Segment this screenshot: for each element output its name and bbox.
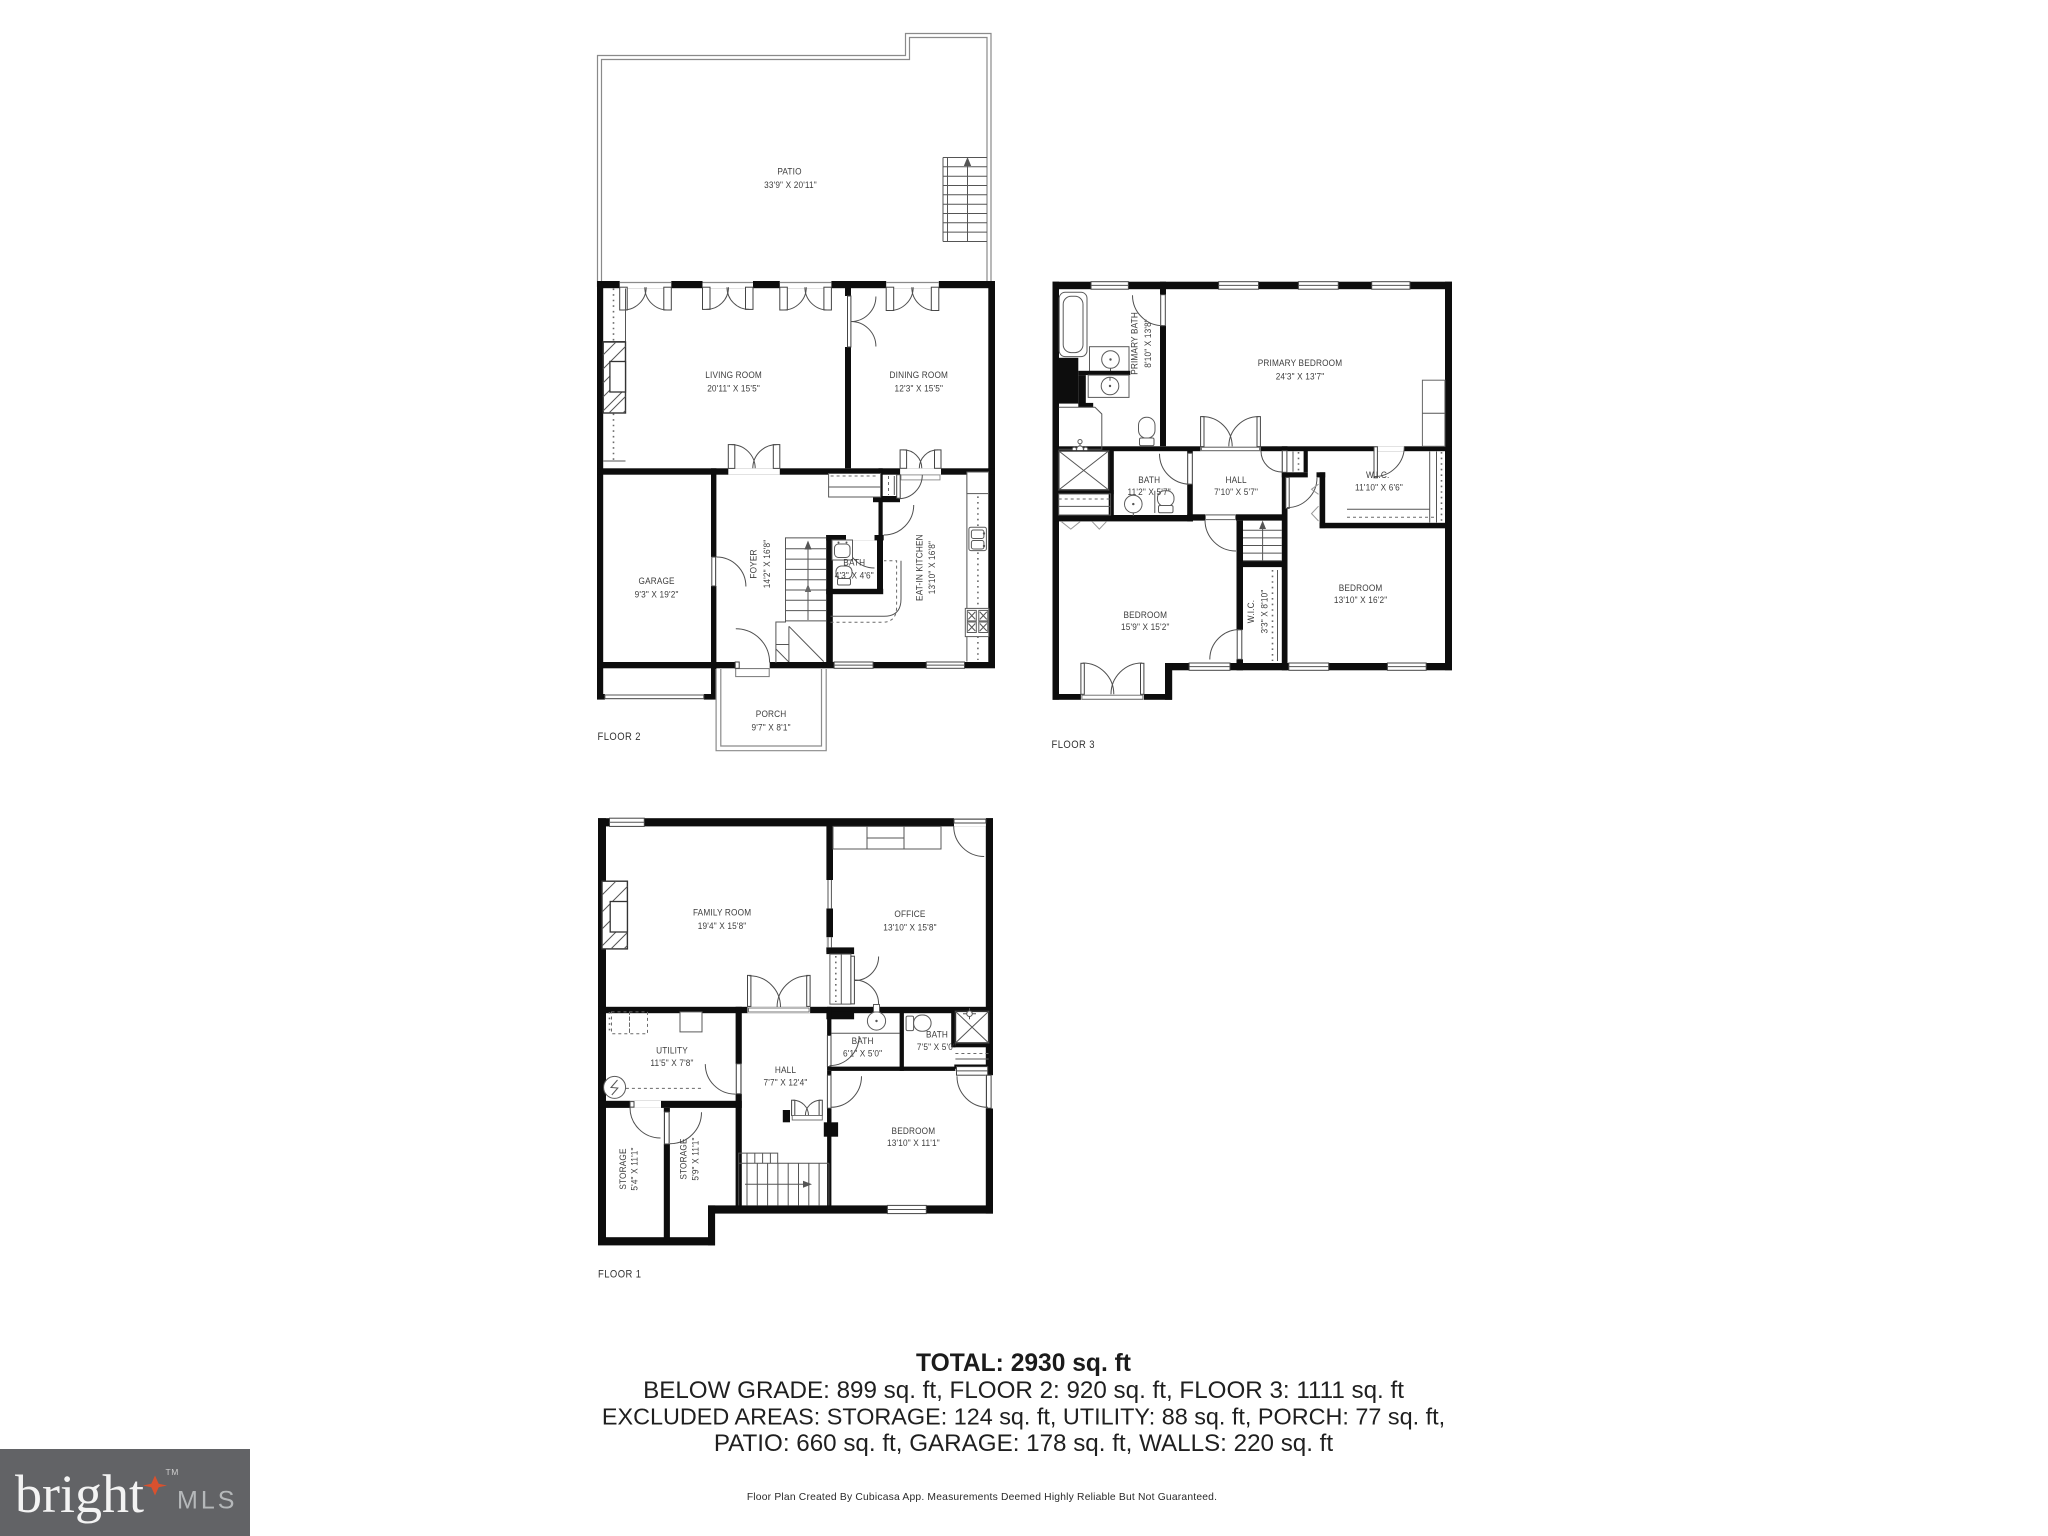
svg-text:5'4" X 11'1": 5'4" X 11'1" <box>630 1147 641 1190</box>
svg-text:W.I.C.: W.I.C. <box>1246 600 1257 623</box>
svg-text:24'3" X 13'7": 24'3" X 13'7" <box>1276 372 1325 383</box>
svg-text:PORCH: PORCH <box>756 709 787 720</box>
svg-text:9'7" X 8'1": 9'7" X 8'1" <box>752 723 791 734</box>
svg-text:FAMILY ROOM: FAMILY ROOM <box>693 908 751 919</box>
svg-text:LIVING ROOM: LIVING ROOM <box>705 370 762 381</box>
svg-text:4'3" X 4'6": 4'3" X 4'6" <box>835 571 874 582</box>
svg-text:HALL: HALL <box>1225 475 1247 486</box>
svg-text:STORAGE: STORAGE <box>679 1138 690 1179</box>
svg-text:TOTAL: 2930 sq. ft: TOTAL: 2930 sq. ft <box>916 1350 1131 1377</box>
svg-text:MLS: MLS <box>177 1487 237 1515</box>
svg-text:BATH: BATH <box>926 1030 948 1041</box>
svg-text:11'5" X 7'8": 11'5" X 7'8" <box>650 1058 693 1069</box>
svg-text:3'3" X 8'10": 3'3" X 8'10" <box>1260 590 1271 634</box>
svg-text:5'9" X 11'1": 5'9" X 11'1" <box>691 1137 702 1180</box>
svg-text:BELOW GRADE: 899 sq. ft, FLOOR: BELOW GRADE: 899 sq. ft, FLOOR 2: 920 sq… <box>643 1377 1404 1404</box>
svg-text:OFFICE: OFFICE <box>894 909 925 920</box>
svg-text:PRIMARY BEDROOM: PRIMARY BEDROOM <box>1258 358 1343 369</box>
svg-text:11'10" X 6'6": 11'10" X 6'6" <box>1355 483 1403 494</box>
svg-text:13'10" X 16'8": 13'10" X 16'8" <box>927 541 938 594</box>
svg-text:13'10" X 15'8": 13'10" X 15'8" <box>883 923 936 934</box>
svg-text:FLOOR 1: FLOOR 1 <box>598 1269 642 1281</box>
svg-text:W.I.C.: W.I.C. <box>1366 470 1389 481</box>
svg-text:15'9" X 15'2": 15'9" X 15'2" <box>1121 622 1170 633</box>
svg-text:7'10" X 5'7": 7'10" X 5'7" <box>1214 487 1258 498</box>
svg-text:20'11" X 15'5": 20'11" X 15'5" <box>707 384 760 395</box>
svg-text:FOYER: FOYER <box>749 549 760 578</box>
svg-text:BATH: BATH <box>1138 475 1160 486</box>
svg-text:33'9" X 20'11": 33'9" X 20'11" <box>764 180 817 191</box>
svg-text:14'2" X 16'8": 14'2" X 16'8" <box>762 540 773 589</box>
svg-text:19'4" X 15'8": 19'4" X 15'8" <box>698 921 747 932</box>
svg-text:PATIO: 660 sq. ft, GARAGE: 178: PATIO: 660 sq. ft, GARAGE: 178 sq. ft, W… <box>714 1430 1334 1457</box>
svg-text:EAT-IN KITCHEN: EAT-IN KITCHEN <box>915 534 926 601</box>
svg-text:EXCLUDED AREAS: STORAGE: 124 s: EXCLUDED AREAS: STORAGE: 124 sq. ft, UTI… <box>602 1404 1445 1430</box>
svg-text:7'5" X 5'0": 7'5" X 5'0" <box>917 1042 956 1053</box>
svg-text:bright: bright <box>15 1464 144 1524</box>
svg-text:BATH: BATH <box>843 558 865 569</box>
svg-text:TM: TM <box>166 1467 179 1477</box>
svg-text:BEDROOM: BEDROOM <box>1339 583 1383 594</box>
svg-text:GARAGE: GARAGE <box>639 576 675 587</box>
svg-text:11'2" X 5'7": 11'2" X 5'7" <box>1128 487 1171 498</box>
svg-text:8'10" X 13'8": 8'10" X 13'8" <box>1143 319 1154 368</box>
svg-text:13'10" X 11'1": 13'10" X 11'1" <box>887 1138 940 1149</box>
svg-text:FLOOR 3: FLOOR 3 <box>1052 739 1096 751</box>
svg-text:Floor Plan Created By Cubicasa: Floor Plan Created By Cubicasa App. Meas… <box>747 1492 1217 1503</box>
svg-text:PATIO: PATIO <box>777 167 801 178</box>
svg-text:FLOOR 2: FLOOR 2 <box>598 731 642 743</box>
svg-text:PRIMARY BATH: PRIMARY BATH <box>1130 312 1141 375</box>
svg-text:7'7" X 12'4": 7'7" X 12'4" <box>764 1078 808 1089</box>
svg-text:STORAGE: STORAGE <box>618 1148 629 1189</box>
svg-text:12'3" X 15'5": 12'3" X 15'5" <box>895 384 944 395</box>
svg-text:BATH: BATH <box>852 1036 874 1047</box>
svg-text:6'1" X 5'0": 6'1" X 5'0" <box>843 1048 882 1059</box>
svg-text:UTILITY: UTILITY <box>656 1046 688 1057</box>
svg-text:BEDROOM: BEDROOM <box>1123 610 1167 621</box>
svg-text:DINING ROOM: DINING ROOM <box>890 370 949 381</box>
svg-text:13'10" X 16'2": 13'10" X 16'2" <box>1334 595 1387 606</box>
svg-text:9'3" X 19'2": 9'3" X 19'2" <box>635 590 679 601</box>
svg-text:BEDROOM: BEDROOM <box>892 1126 936 1137</box>
svg-text:HALL: HALL <box>775 1065 797 1076</box>
